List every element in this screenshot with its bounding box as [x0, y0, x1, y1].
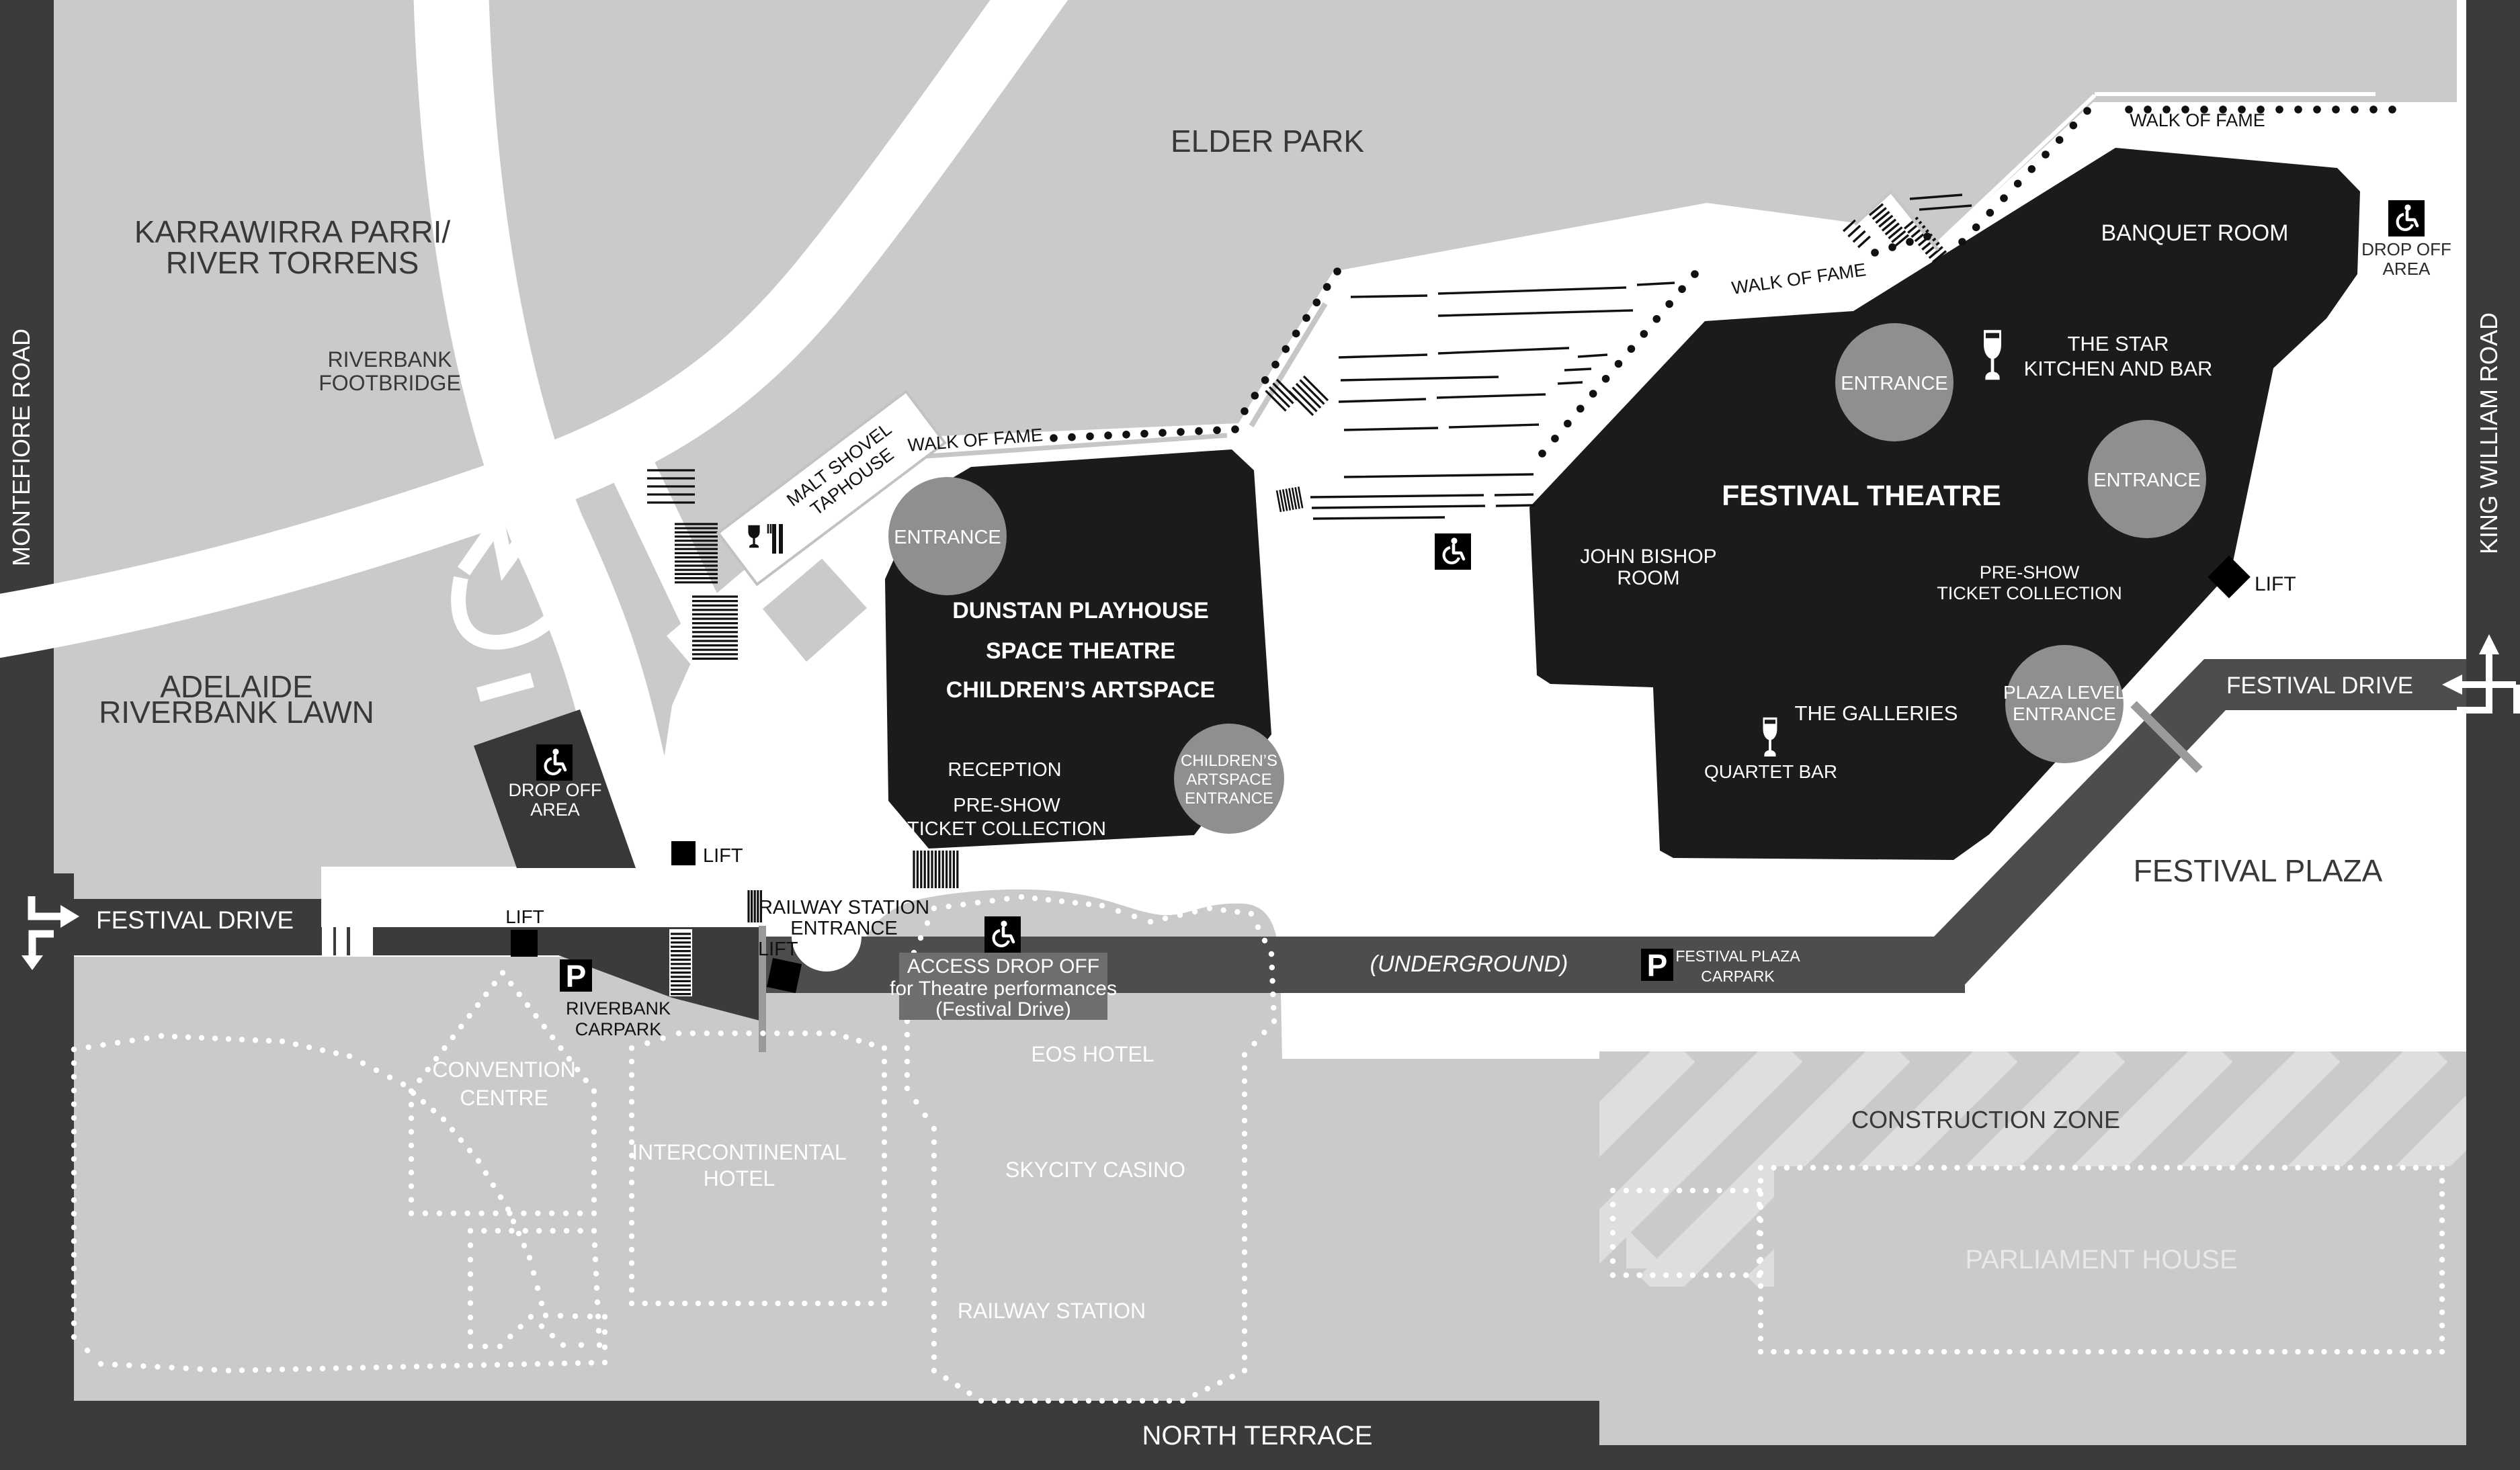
svg-text:RECEPTION: RECEPTION [948, 759, 1061, 781]
svg-text:CARPARK: CARPARK [575, 1019, 662, 1039]
svg-text:ENTRANCE: ENTRANCE [1841, 373, 1948, 394]
svg-text:RIVERBANK: RIVERBANK [566, 998, 671, 1019]
svg-text:ELDER PARK: ELDER PARK [1171, 124, 1364, 159]
svg-text:FESTIVAL DRIVE: FESTIVAL DRIVE [2226, 673, 2413, 699]
svg-text:WALK OF FAME: WALK OF FAME [2130, 110, 2265, 130]
svg-text:ROOM: ROOM [1617, 567, 1679, 589]
svg-text:INTERCONTINENTAL: INTERCONTINENTAL [632, 1140, 846, 1164]
svg-text:KING WILLIAM ROAD: KING WILLIAM ROAD [2475, 312, 2503, 554]
svg-text:NORTH TERRACE: NORTH TERRACE [1142, 1421, 1372, 1451]
svg-text:JOHN BISHOP: JOHN BISHOP [1580, 546, 1716, 568]
svg-text:BANQUET ROOM: BANQUET ROOM [2101, 220, 2289, 246]
svg-text:ENTRANCE: ENTRANCE [894, 527, 1001, 548]
svg-text:CARPARK: CARPARK [1701, 967, 1775, 985]
svg-text:PARLIAMENT HOUSE: PARLIAMENT HOUSE [1965, 1245, 2237, 1274]
svg-text:TICKET COLLECTION: TICKET COLLECTION [907, 818, 1106, 840]
svg-text:TICKET COLLECTION: TICKET COLLECTION [1937, 583, 2122, 603]
svg-text:FESTIVAL THEATRE: FESTIVAL THEATRE [1722, 480, 2001, 512]
svg-text:LIFT: LIFT [505, 906, 544, 927]
svg-text:AREA: AREA [530, 799, 580, 820]
svg-text:EOS HOTEL: EOS HOTEL [1031, 1042, 1154, 1066]
svg-text:FESTIVAL PLAZA: FESTIVAL PLAZA [1675, 947, 1800, 965]
svg-text:ENTRANCE: ENTRANCE [1185, 789, 1273, 808]
svg-text:FESTIVAL DRIVE: FESTIVAL DRIVE [96, 906, 294, 934]
svg-text:THE STAR: THE STAR [2068, 332, 2169, 355]
svg-text:CENTRE: CENTRE [460, 1086, 548, 1110]
svg-text:RIVERBANK: RIVERBANK [328, 347, 452, 372]
svg-text:FESTIVAL PLAZA: FESTIVAL PLAZA [2134, 853, 2383, 888]
svg-text:LIFT: LIFT [2255, 573, 2296, 595]
svg-text:QUARTET BAR: QUARTET BAR [1704, 761, 1837, 782]
svg-text:FOOTBRIDGE: FOOTBRIDGE [319, 371, 461, 395]
svg-text:CHILDREN’S ARTSPACE: CHILDREN’S ARTSPACE [946, 677, 1215, 703]
svg-text:DROP OFF: DROP OFF [508, 780, 601, 800]
svg-text:RAILWAY STATION: RAILWAY STATION [958, 1299, 1146, 1323]
svg-text:RAILWAY STATION: RAILWAY STATION [759, 897, 929, 918]
svg-text:RIVER TORRENS: RIVER TORRENS [166, 245, 419, 280]
svg-text:DROP OFF: DROP OFF [2361, 239, 2451, 259]
svg-text:PRE-SHOW: PRE-SHOW [1980, 562, 2080, 582]
svg-text:THE GALLERIES: THE GALLERIES [1795, 701, 1958, 725]
svg-text:ACCESS DROP OFF: ACCESS DROP OFF [907, 955, 1099, 978]
svg-text:SKYCITY CASINO: SKYCITY CASINO [1005, 1158, 1185, 1182]
svg-text:ENTRANCE: ENTRANCE [2093, 470, 2201, 491]
svg-text:PRE-SHOW: PRE-SHOW [953, 795, 1060, 816]
svg-text:CONVENTION: CONVENTION [432, 1057, 575, 1082]
svg-text:(UNDERGROUND): (UNDERGROUND) [1370, 951, 1568, 977]
svg-text:ENTRANCE: ENTRANCE [790, 918, 898, 939]
svg-text:LIFT: LIFT [703, 845, 743, 867]
svg-text:ENTRANCE: ENTRANCE [2013, 703, 2116, 724]
svg-text:LIFT: LIFT [758, 939, 798, 960]
svg-text:PLAZA LEVEL: PLAZA LEVEL [2003, 682, 2126, 703]
svg-text:KITCHEN AND BAR: KITCHEN AND BAR [2024, 357, 2213, 380]
svg-text:KARRAWIRRA PARRI/: KARRAWIRRA PARRI/ [134, 214, 451, 249]
svg-text:AREA: AREA [2383, 259, 2431, 279]
svg-text:MONTEFIORE ROAD: MONTEFIORE ROAD [7, 329, 35, 566]
svg-text:CHILDREN’S: CHILDREN’S [1181, 752, 1277, 770]
svg-text:(Festival Drive): (Festival Drive) [935, 998, 1071, 1021]
svg-text:SPACE THEATRE: SPACE THEATRE [986, 638, 1175, 664]
svg-text:DUNSTAN PLAYHOUSE: DUNSTAN PLAYHOUSE [952, 598, 1209, 623]
svg-text:HOTEL: HOTEL [704, 1166, 775, 1191]
svg-text:CONSTRUCTION ZONE: CONSTRUCTION ZONE [1851, 1106, 2120, 1133]
svg-text:RIVERBANK LAWN: RIVERBANK LAWN [99, 695, 374, 730]
svg-text:for Theatre performances: for Theatre performances [890, 978, 1117, 1000]
svg-text:ARTSPACE: ARTSPACE [1186, 771, 1271, 789]
